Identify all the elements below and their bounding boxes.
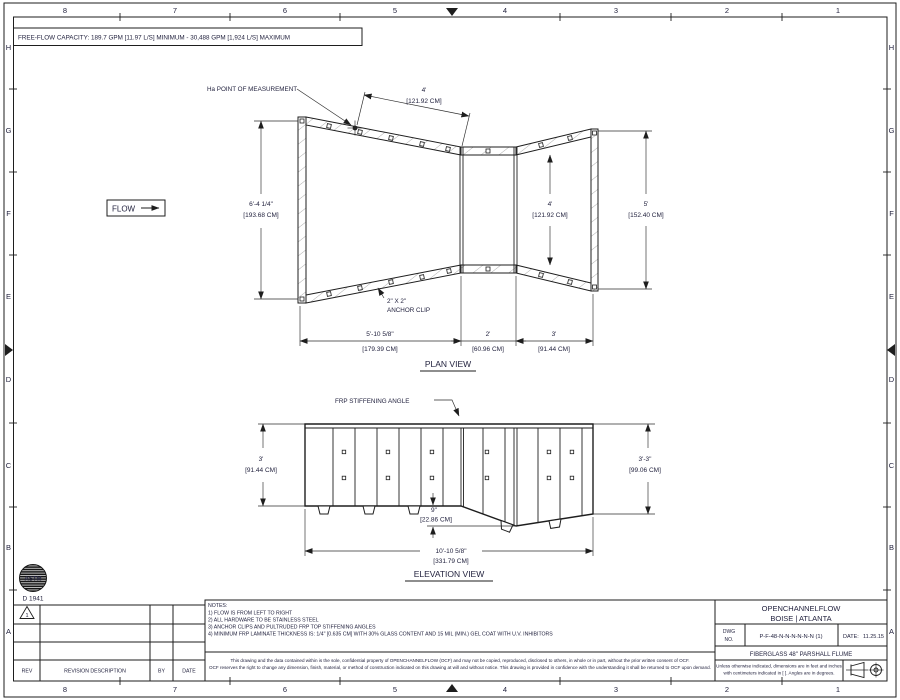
anchor-clip-label: 2" X 2" [387, 298, 406, 305]
cad-drawing: 8 7 6 5 4 3 2 1 8 7 6 5 4 3 2 1 H G F E … [0, 0, 900, 700]
dim-text: [60.96 CM] [472, 346, 504, 353]
frp-label: FRP STIFFENING ANGLE [335, 398, 409, 405]
dim-text: [152.40 CM] [628, 212, 664, 219]
dim-text: [331.79 CM] [433, 558, 469, 565]
revision-marker: 1 [20, 607, 34, 620]
zone-col-label: 5 [393, 685, 397, 694]
flow-label: FLOW [112, 205, 136, 214]
dim-text: [193.68 CM] [243, 212, 279, 219]
frp-callout: FRP STIFFENING ANGLE [335, 398, 459, 416]
dim-text: [179.39 CM] [362, 346, 398, 353]
zone-row-label: A [6, 627, 11, 636]
ha-label: Ha POINT OF MEASUREMENT [207, 86, 297, 93]
units-note: Unless otherwise indicated, dimensions a… [716, 664, 842, 669]
notes-title: NOTES: [208, 603, 227, 609]
zone-row-label: B [889, 543, 894, 552]
dim-text: [99.06 CM] [629, 467, 661, 474]
zone-row-label: H [6, 43, 11, 52]
dim-text: [22.86 CM] [420, 517, 452, 524]
zone-col-label: 1 [836, 685, 840, 694]
zone-col-label: 6 [283, 6, 287, 15]
note-item: 4) MINIMUM FRP LAMINATE THICKNESS IS: 1/… [208, 632, 553, 638]
third-angle-projection-icon [846, 663, 884, 678]
revision-marker-number: 1 [25, 613, 28, 619]
zone-col-label: 5 [393, 6, 397, 15]
zone-row-label: E [889, 292, 894, 301]
zone-col-label: 4 [503, 6, 507, 15]
dim-elev-drop: 9" [22.86 CM] [420, 493, 516, 538]
dwg-no-label: DWG [723, 629, 735, 635]
dim-text: 6'-4 1/4" [249, 201, 273, 208]
zone-col-label: 4 [503, 685, 507, 694]
dim-elev-left-height: 3' [91.44 CM] [245, 424, 305, 506]
date-label: DATE: [843, 634, 859, 640]
zone-col-label: 2 [725, 6, 729, 15]
dim-text: 2' [486, 331, 491, 338]
zone-col-label: 8 [63, 6, 67, 15]
plan-view-title: PLAN VIEW [425, 359, 471, 369]
dim-text: 10'-10 5/8" [435, 548, 467, 555]
zone-col-label: 7 [173, 685, 177, 694]
rev-header: REVISION DESCRIPTION [64, 669, 126, 675]
plan-view: Ha POINT OF MEASUREMENT 4' [121.92 CM] 6… [107, 86, 664, 371]
dim-text: 4' [422, 87, 427, 94]
rev-header: BY [158, 669, 165, 675]
legal-line: This drawing and the data contained with… [230, 658, 689, 663]
legal-line: OCF reserves the right to change any dim… [209, 665, 711, 670]
dim-text: [91.44 CM] [245, 467, 277, 474]
dim-text: 3'-3" [639, 456, 653, 463]
zone-col-label: 7 [173, 6, 177, 15]
zone-row-label: D [6, 375, 12, 384]
zone-labels: 8 7 6 5 4 3 2 1 8 7 6 5 4 3 2 1 H G F E … [6, 6, 895, 694]
zone-row-label: H [889, 43, 894, 52]
dim-text: [91.44 CM] [538, 346, 570, 353]
elevation-view: FRP STIFFENING ANGLE 3' [91.44 CM] 3'-3"… [245, 398, 661, 581]
astm-logo: ASTM D 1941 [20, 565, 47, 603]
zone-col-label: 1 [836, 6, 840, 15]
elevation-outline [305, 424, 593, 526]
flow-direction-box: FLOW [107, 200, 165, 216]
dim-text: 4' [548, 201, 553, 208]
zone-row-label: G [6, 126, 12, 135]
dim-text: 3' [259, 456, 264, 463]
free-flow-capacity-text: FREE-FLOW CAPACITY: 189.7 GPM [11.97 L/S… [18, 35, 290, 42]
dim-text: [121.92 CM] [532, 212, 568, 219]
dim-outlet-width: 5' [152.40 CM] [598, 131, 664, 289]
rev-header: REV [22, 669, 33, 675]
anchor-clip-callout: 2" X 2" ANCHOR CLIP [378, 288, 430, 314]
dwg-number: P-F-48-N-N-N-N-N-N (1) [759, 634, 822, 640]
zone-ticks [9, 13, 891, 685]
title-block: OPENCHANNELFLOW BOISE | ATLANTA DWG NO. … [715, 600, 887, 681]
revision-table: 1 REV REVISION DESCRIPTION BY DATE [14, 605, 206, 681]
company-name: OPENCHANNELFLOW [762, 604, 842, 613]
dim-inlet-width: 6'-4 1/4" [193.68 CM] [243, 121, 298, 299]
zone-col-label: 3 [614, 685, 618, 694]
zone-col-label: 3 [614, 6, 618, 15]
note-item: 1) FLOW IS FROM LEFT TO RIGHT [208, 611, 293, 617]
dim-text: [121.92 CM] [406, 98, 442, 105]
date-value: 11.25.15 [863, 634, 884, 640]
zone-row-label: G [889, 126, 895, 135]
note-item: 2) ALL HARDWARE TO BE STAINLESS STEEL [208, 618, 319, 624]
dwg-no-label: NO. [725, 637, 734, 643]
zone-row-label: E [6, 292, 11, 301]
anchor-clip-label: ANCHOR CLIP [387, 307, 430, 314]
dim-text: 5'-10 5/8" [366, 331, 394, 338]
sheet-frame [4, 3, 896, 697]
dim-throat-width: 4' [121.92 CM] [532, 155, 568, 265]
company-locations: BOISE | ATLANTA [770, 614, 831, 623]
elevation-view-title: ELEVATION VIEW [414, 569, 485, 579]
zone-center-arrows [5, 8, 895, 692]
dim-text: 5' [644, 201, 649, 208]
astm-standard-number: D 1941 [23, 596, 44, 603]
zone-row-label: A [889, 627, 894, 636]
capacity-box: FREE-FLOW CAPACITY: 189.7 GPM [11.97 L/S… [14, 28, 363, 46]
zone-col-label: 6 [283, 685, 287, 694]
zone-col-label: 8 [63, 685, 67, 694]
zone-row-label: F [889, 209, 894, 218]
zone-row-label: F [6, 209, 11, 218]
dim-text: 9" [431, 507, 438, 514]
dim-elev-right-height: 3'-3" [99.06 CM] [593, 424, 661, 514]
zone-row-label: C [6, 461, 12, 470]
legal-block: This drawing and the data contained with… [205, 652, 715, 681]
rev-header: DATE [182, 669, 196, 675]
zone-row-label: C [889, 461, 895, 470]
zone-row-label: D [889, 375, 895, 384]
notes-block: NOTES: 1) FLOW IS FROM LEFT TO RIGHT 2) … [205, 600, 715, 652]
drawing-sheet: 8 7 6 5 4 3 2 1 8 7 6 5 4 3 2 1 H G F E … [0, 0, 900, 700]
drawing-description: FIBERGLASS 48" PARSHALL FLUME [750, 652, 853, 658]
astm-logo-text: ASTM [25, 577, 42, 583]
zone-col-label: 2 [725, 685, 729, 694]
zone-row-label: B [6, 543, 11, 552]
plan-flume-walls [298, 117, 598, 303]
units-note: with centimeters indicated in [ ]. Angle… [723, 671, 834, 676]
note-item: 3) ANCHOR CLIPS AND PULTRUDED FRP TOP ST… [208, 625, 376, 631]
dim-text: 3' [552, 331, 557, 338]
